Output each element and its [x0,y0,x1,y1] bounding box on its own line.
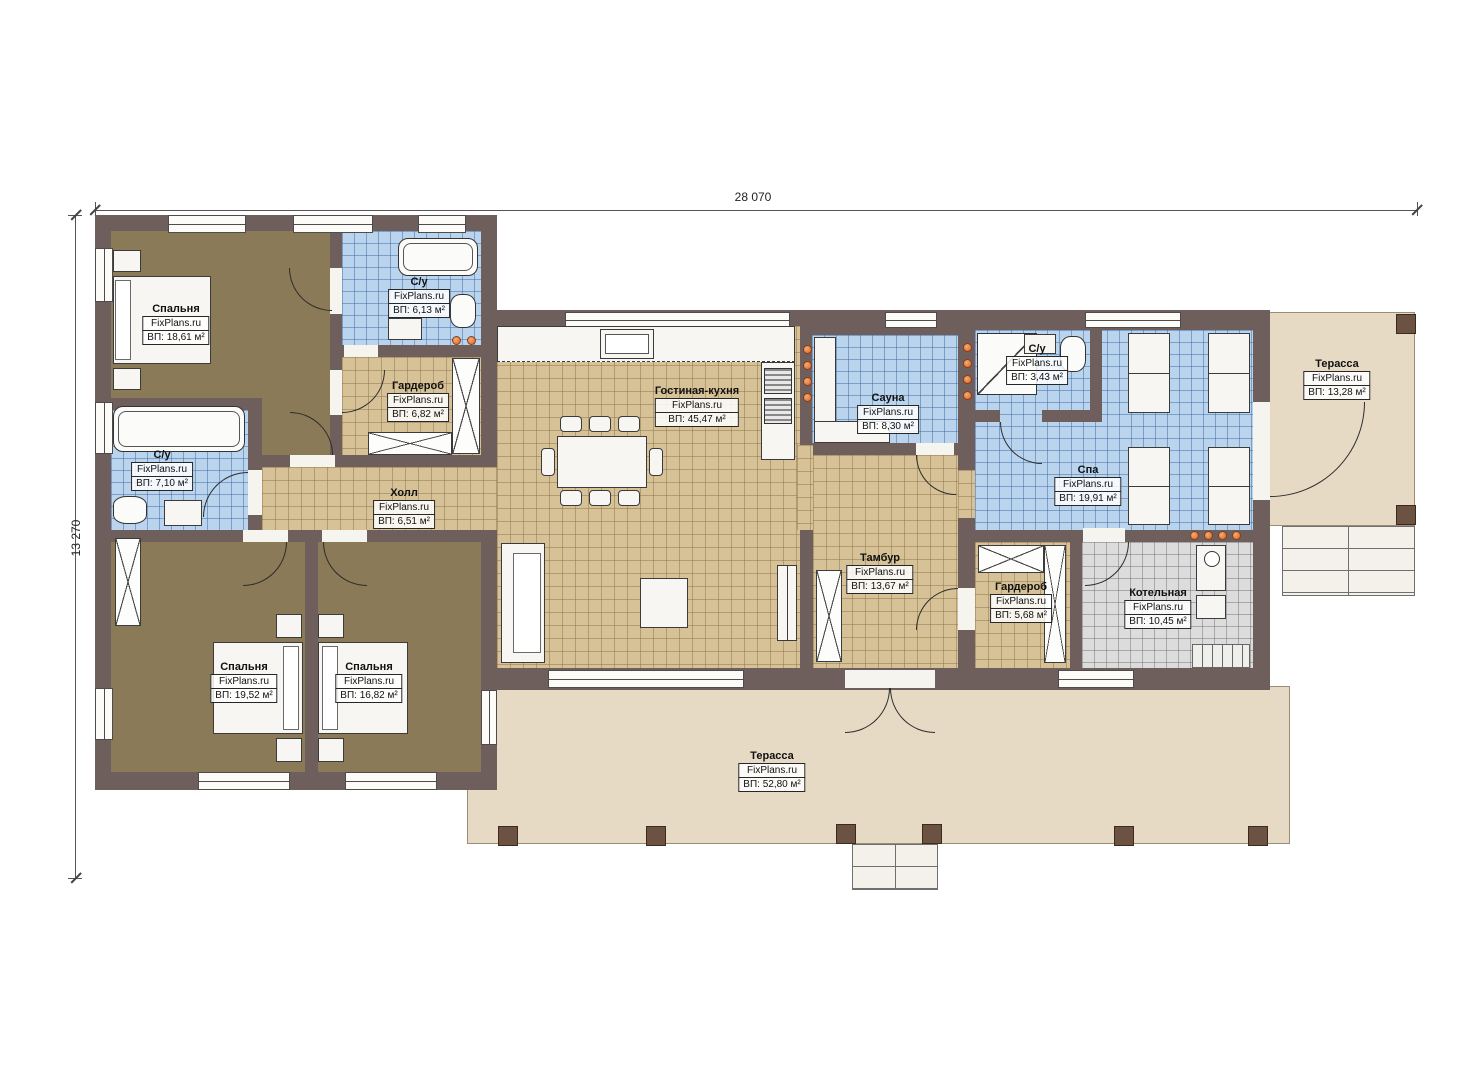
downlight-icon [467,336,476,345]
door-opening [243,530,288,542]
downlight-icon [1204,531,1213,540]
terrace-post [922,824,942,844]
dining-table [557,436,647,488]
room-area: ВП: 13,28 м² [1303,385,1370,400]
spa-lounger [1208,333,1250,413]
room-label-sauna: Сауна FixPlans.ru ВП: 8,30 м² [857,392,919,434]
chair [618,416,640,432]
room-area: ВП: 19,91 м² [1054,491,1121,506]
room-area: ВП: 6,13 м² [388,303,450,318]
downlight-icon [1190,531,1199,540]
downlight-icon [803,345,812,354]
oven [764,398,792,424]
wardrobe-unit [368,432,452,455]
bathtub [398,238,478,276]
toilet [450,294,476,328]
terrace-post [1114,826,1134,846]
room-name: С/у [388,276,450,288]
room-label-bedroom1: Спальня FixPlans.ru ВП: 18,61 м² [142,303,209,345]
terrace-right-steps [1282,526,1415,596]
spa-lounger [1128,447,1170,525]
room-area: ВП: 8,30 м² [857,419,919,434]
boiler-steps [1192,644,1250,668]
wardrobe-unit [452,358,480,454]
window [198,772,290,790]
room-name: С/у [1006,343,1068,355]
downlight-icon [963,359,972,368]
terrace-post [1396,314,1416,334]
watermark-text: FixPlans.ru [857,405,919,420]
door-opening [958,588,975,630]
sink [388,318,422,340]
door-opening [916,443,954,455]
watermark-text: FixPlans.ru [738,763,805,778]
downlight-icon [963,391,972,400]
room-area: ВП: 16,82 м² [335,688,402,703]
door-opening-entry [845,670,935,688]
room-label-bedroom3: Спальня FixPlans.ru ВП: 16,82 м² [335,661,402,703]
chair [589,416,611,432]
kitchen-sink [600,329,654,359]
window-living-terrace [548,670,744,688]
watermark-text: FixPlans.ru [387,393,449,408]
room-label-bath1: С/у FixPlans.ru ВП: 6,13 м² [388,276,450,318]
terrace-post [646,826,666,846]
room-label-vestibule: Тамбур FixPlans.ru ВП: 13,67 м² [846,552,913,594]
room-label-boiler: Котельная FixPlans.ru ВП: 10,45 м² [1124,587,1191,629]
room-area: ВП: 18,61 м² [142,330,209,345]
room-label-hall: Холл FixPlans.ru ВП: 6,51 м² [373,487,435,529]
watermark-text: FixPlans.ru [388,289,450,304]
terrace-main-steps [852,844,938,890]
room-name: Гостиная-кухня [655,385,739,397]
watermark-text: FixPlans.ru [210,674,277,689]
room-name: Спальня [335,661,402,673]
chair [618,490,640,506]
door-opening [290,455,335,467]
spa-lounger [1208,447,1250,525]
downlight-icon [963,375,972,384]
room-name: Спа [1054,464,1121,476]
room-name: Терасса [1303,358,1370,370]
spa-lounger [1128,333,1170,413]
downlight-icon [803,377,812,386]
dimension-height-label: 13 270 [69,498,83,578]
window [95,688,113,740]
downlight-icon [803,361,812,370]
nightstand [276,738,302,762]
terrace-post [498,826,518,846]
tv-stand [777,565,797,641]
watermark-text: FixPlans.ru [1054,477,1121,492]
downlight-icon [452,336,461,345]
chair [589,490,611,506]
nightstand [318,614,344,638]
door-opening [344,345,378,357]
sink [164,500,202,526]
room-label-spa: Спа FixPlans.ru ВП: 19,91 м² [1054,464,1121,506]
window [95,248,113,302]
pillow [283,646,299,730]
room-name: Гардероб [387,380,449,392]
window [95,402,113,454]
room-name: Холл [373,487,435,499]
room-area: ВП: 6,51 м² [373,514,435,529]
window [168,215,246,233]
downlight-icon [1232,531,1241,540]
sink-bowl [605,334,649,354]
room-area: ВП: 52,80 м² [738,777,805,792]
watermark-text: FixPlans.ru [1124,600,1191,615]
room-name: Гардероб [990,581,1052,593]
room-name: Спальня [210,661,277,673]
room-name: Сауна [857,392,919,404]
room-name: Терасса [738,750,805,762]
door-opening [322,530,367,542]
chair [541,448,555,476]
window [1058,670,1134,688]
bathtub [113,406,245,452]
terrace-post [1248,826,1268,846]
room-area: ВП: 3,43 м² [1006,370,1068,385]
watermark-text: FixPlans.ru [1303,371,1370,386]
watermark-text: FixPlans.ru [990,594,1052,609]
room-area: ВП: 19,52 м² [210,688,277,703]
room-label-bedroom2: Спальня FixPlans.ru ВП: 19,52 м² [210,661,277,703]
downlight-icon [1218,531,1227,540]
room-area: ВП: 5,68 м² [990,608,1052,623]
floor-plan: Спальня FixPlans.ru ВП: 18,61 м² С/у Fix… [0,0,1473,1080]
door-opening [1083,528,1125,542]
room-name: Тамбур [846,552,913,564]
window [1085,312,1181,328]
chair [560,490,582,506]
boiler-dial [1204,551,1220,567]
wardrobe-unit [115,538,141,626]
pillow [115,280,131,360]
nightstand [318,738,344,762]
door-opening-spa-terrace [1253,402,1270,500]
wardrobe-unit [978,545,1044,573]
watermark-text: FixPlans.ru [846,565,913,580]
room-name: С/у [131,449,193,461]
room-label-wardrobe1: Гардероб FixPlans.ru ВП: 6,82 м² [387,380,449,422]
room-label-living: Гостиная-кухня FixPlans.ru ВП: 45,47 м² [655,385,739,427]
sofa-seat [513,553,541,653]
floor-passage [797,445,813,530]
window [345,772,437,790]
watermark-text: FixPlans.ru [655,398,739,413]
watermark-text: FixPlans.ru [142,316,209,331]
wall-bath3-right [1090,330,1102,422]
toilet [113,496,147,524]
chair [560,416,582,432]
window [885,312,937,328]
coffee-table [640,578,688,628]
room-name: Котельная [1124,587,1191,599]
watermark-text: FixPlans.ru [335,674,402,689]
room-area: ВП: 7,10 м² [131,476,193,491]
downlight-icon [963,343,972,352]
dimension-width-label: 28 070 [735,190,772,204]
oven [764,368,792,394]
nightstand [276,614,302,638]
room-area: ВП: 45,47 м² [655,412,739,427]
wall-bath3-bottom [1042,410,1090,422]
boiler-unit [1196,595,1226,619]
watermark-text: FixPlans.ru [1006,356,1068,371]
downlight-icon [803,393,812,402]
room-name: Спальня [142,303,209,315]
window [481,690,497,745]
boiler-unit [1196,545,1226,591]
room-label-terrace-main: Терасса FixPlans.ru ВП: 52,80 м² [738,750,805,792]
watermark-text: FixPlans.ru [131,462,193,477]
terrace-post [836,824,856,844]
watermark-text: FixPlans.ru [373,500,435,515]
nightstand [113,250,141,272]
sauna-bench [814,337,836,423]
dimension-line-top [95,210,1418,211]
terrace-post [1396,505,1416,525]
room-area: ВП: 10,45 м² [1124,614,1191,629]
chair [649,448,663,476]
wall-bath3-bottom [975,410,1000,422]
window [293,215,373,233]
room-label-bath3: С/у FixPlans.ru ВП: 3,43 м² [1006,343,1068,385]
passage-opening [958,470,975,518]
nightstand [113,368,141,390]
wardrobe-unit [816,570,842,662]
door-opening [248,470,262,515]
window [418,215,466,233]
room-area: ВП: 6,82 м² [387,407,449,422]
room-area: ВП: 13,67 м² [846,579,913,594]
door-opening [330,370,342,415]
room-label-terrace-right: Терасса FixPlans.ru ВП: 13,28 м² [1303,358,1370,400]
room-label-wardrobe2: Гардероб FixPlans.ru ВП: 5,68 м² [990,581,1052,623]
room-label-bath2: С/у FixPlans.ru ВП: 7,10 м² [131,449,193,491]
